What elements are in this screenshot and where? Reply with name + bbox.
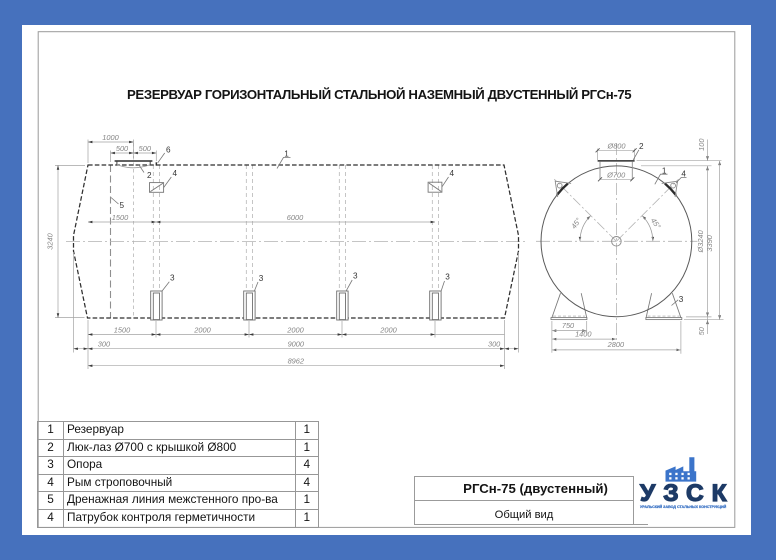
svg-text:4: 4 [173,169,178,178]
svg-text:2000: 2000 [379,325,397,334]
svg-text:3240: 3240 [46,232,55,249]
svg-text:1400: 1400 [575,330,592,339]
svg-text:750: 750 [562,321,575,330]
svg-text:45°: 45° [569,216,583,230]
svg-text:300: 300 [488,340,501,349]
svg-text:1500: 1500 [112,213,129,222]
svg-text:Ø700: Ø700 [606,171,626,180]
svg-text:50: 50 [697,326,706,335]
svg-text:2: 2 [639,142,644,151]
svg-text:500: 500 [116,144,129,153]
svg-text:9000: 9000 [288,339,305,348]
svg-text:5: 5 [120,201,125,210]
svg-text:6: 6 [166,145,171,154]
svg-text:2000: 2000 [286,325,304,334]
svg-text:500: 500 [139,144,152,153]
svg-text:3: 3 [259,274,264,283]
svg-text:3: 3 [679,295,684,304]
svg-text:1: 1 [662,166,667,175]
svg-text:4: 4 [450,169,455,178]
svg-text:3: 3 [170,274,175,283]
svg-text:8962: 8962 [288,356,304,365]
svg-text:6000: 6000 [287,213,304,222]
svg-text:3390: 3390 [705,234,714,251]
svg-text:2000: 2000 [193,325,211,334]
svg-text:Ø3240: Ø3240 [696,229,705,253]
svg-text:Ø800: Ø800 [606,142,626,151]
svg-text:3: 3 [353,271,358,280]
svg-text:1000: 1000 [102,133,119,142]
svg-text:1: 1 [284,149,289,158]
svg-text:2: 2 [147,171,152,180]
svg-text:2800: 2800 [607,340,625,349]
svg-text:4: 4 [681,170,686,179]
svg-text:1500: 1500 [114,325,131,334]
svg-text:3: 3 [445,272,450,281]
svg-text:300: 300 [98,340,111,349]
svg-text:100: 100 [697,138,706,151]
